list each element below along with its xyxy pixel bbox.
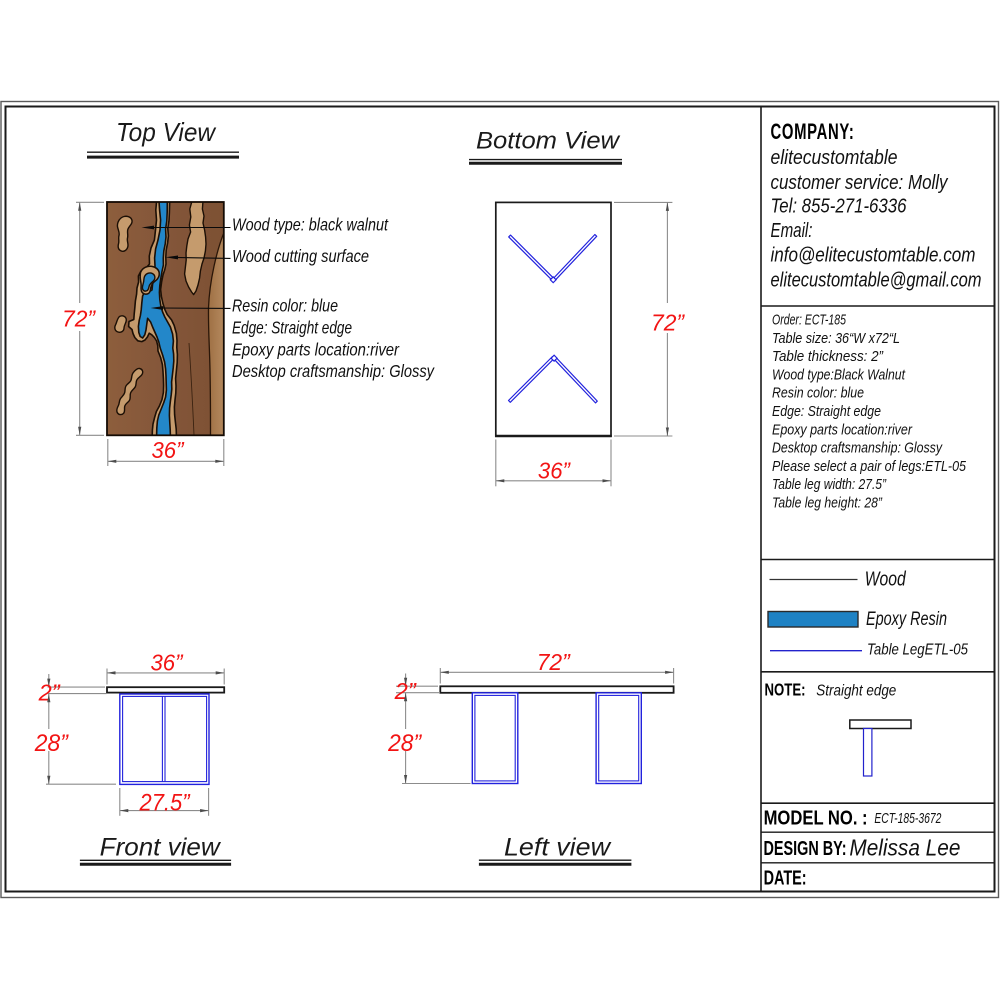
svg-text:customer service: Molly: customer service: Molly (771, 172, 949, 194)
svg-text:Desktop craftsmanship: Glossy: Desktop craftsmanship: Glossy (772, 440, 943, 457)
svg-text:Table leg height: 28”: Table leg height: 28” (772, 495, 883, 512)
svg-text:Epoxy parts location:river: Epoxy parts location:river (772, 421, 913, 438)
svg-text:Straight edge: Straight edge (816, 682, 896, 699)
svg-text:Wood type: black walnut: Wood type: black walnut (232, 215, 389, 235)
svg-text:Email:: Email: (771, 220, 813, 242)
svg-text:Resin color: blue: Resin color: blue (772, 385, 864, 402)
svg-text:Resin color: blue: Resin color: blue (232, 296, 338, 316)
svg-text:Melissa Lee: Melissa Lee (849, 835, 960, 861)
svg-text:72”: 72” (651, 309, 685, 335)
svg-text:72”: 72” (62, 306, 96, 332)
svg-text:Desktop craftsmanship: Glossy: Desktop craftsmanship: Glossy (232, 361, 435, 381)
svg-text:elitecustomtable: elitecustomtable (771, 147, 898, 169)
svg-text:72”: 72” (537, 649, 571, 675)
svg-text:Wood: Wood (865, 569, 907, 591)
svg-text:Tel: 855-271-6336: Tel: 855-271-6336 (771, 196, 908, 218)
svg-text:Bottom View: Bottom View (476, 128, 621, 155)
svg-text:Table LegETL-05: Table LegETL-05 (867, 642, 968, 659)
svg-text:DESIGN BY:: DESIGN BY: (764, 838, 847, 860)
svg-text:ECT-185-3672: ECT-185-3672 (874, 810, 941, 827)
svg-text:Table size: 36“W x72“L: Table size: 36“W x72“L (772, 330, 900, 347)
svg-text:info@elitecustomtable.com: info@elitecustomtable.com (771, 245, 976, 267)
svg-text:elitecustomtable@gmail.com: elitecustomtable@gmail.com (771, 269, 982, 291)
svg-text:Edge: Straight edge: Edge: Straight edge (772, 403, 881, 420)
svg-text:Wood type:Black Walnut: Wood type:Black Walnut (772, 366, 906, 383)
svg-text:Please select a pair of legs:E: Please select a pair of legs:ETL-05 (772, 458, 967, 475)
svg-text:MODEL NO. :: MODEL NO. : (764, 807, 868, 829)
svg-text:36”: 36” (152, 437, 185, 463)
svg-text:Epoxy Resin: Epoxy Resin (866, 609, 947, 630)
svg-text:COMPANY:: COMPANY: (771, 119, 855, 144)
svg-text:Edge: Straight edge: Edge: Straight edge (232, 318, 352, 338)
svg-text:NOTE:: NOTE: (765, 679, 806, 699)
svg-text:Table leg width: 27.5”: Table leg width: 27.5” (772, 476, 887, 493)
svg-text:36”: 36” (538, 457, 571, 483)
svg-text:27.5”: 27.5” (139, 790, 191, 817)
svg-text:Order: ECT-185: Order: ECT-185 (772, 312, 846, 329)
svg-text:Epoxy parts location:river: Epoxy parts location:river (232, 340, 400, 360)
svg-text:28”: 28” (387, 730, 422, 757)
svg-text:36”: 36” (151, 649, 184, 675)
svg-text:28”: 28” (34, 730, 69, 757)
svg-text:DATE:: DATE: (764, 868, 807, 890)
svg-text:Left view: Left view (504, 834, 612, 862)
svg-text:Top View: Top View (116, 117, 217, 147)
svg-text:Table thickness: 2”: Table thickness: 2” (772, 348, 884, 365)
svg-text:Wood cutting surface: Wood cutting surface (232, 246, 369, 266)
svg-text:Front view: Front view (100, 834, 222, 862)
